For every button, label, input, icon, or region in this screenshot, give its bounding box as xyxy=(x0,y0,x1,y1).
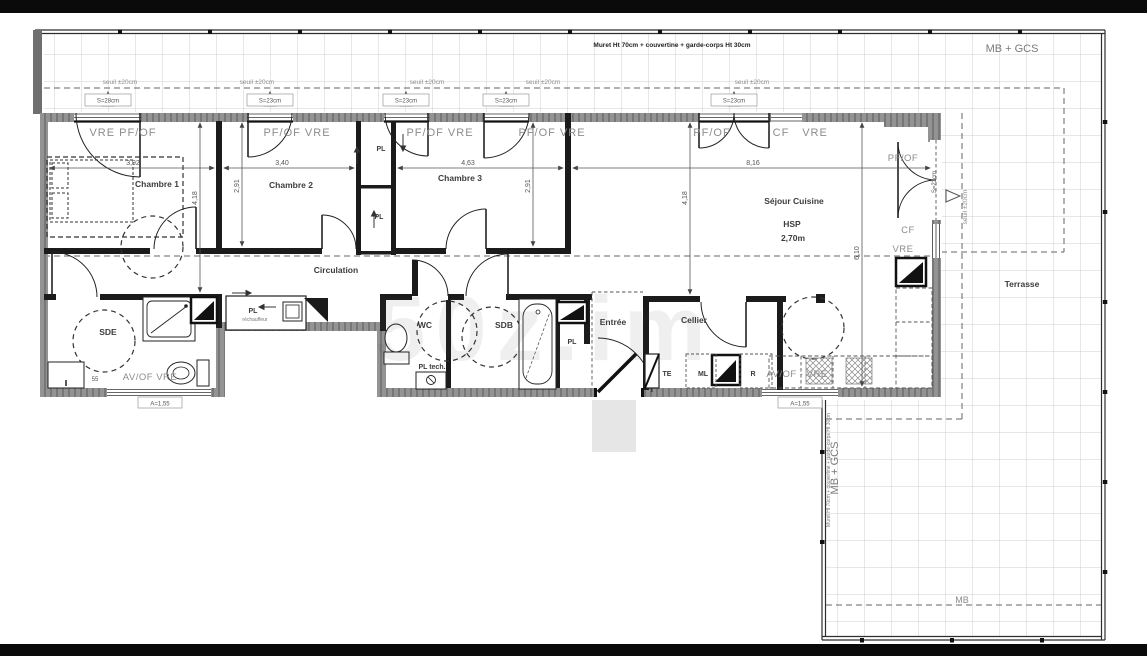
dim-ch2-height: 2,91 xyxy=(234,179,241,193)
label-vre-pfof-ch1: VRE PF/OF xyxy=(89,127,156,139)
window-cf-fixed xyxy=(771,112,802,123)
label-pfof-sejour: PF/OF xyxy=(693,127,730,139)
label-pl-sdb: PL xyxy=(568,339,578,346)
closet-corner xyxy=(304,298,328,322)
pillow-1 xyxy=(52,163,68,188)
bottom-black-bar xyxy=(0,644,1147,656)
exterior-wall-bottom-main xyxy=(377,388,940,397)
exterior-wall-notch-left xyxy=(216,331,225,397)
dim-sejour-width: 8,16 xyxy=(746,160,760,167)
turning-circle-sejour xyxy=(782,297,844,359)
dim-ch3-width: 4,63 xyxy=(461,160,475,167)
label-55: 55 xyxy=(92,377,99,383)
label-chambre1: Chambre 1 xyxy=(135,179,179,189)
label-mb-bottom: MB xyxy=(955,595,969,605)
label-pl-tech: PL tech. xyxy=(418,364,445,371)
label-pl-upper: PL xyxy=(377,146,387,153)
terrace-end-wall xyxy=(33,30,42,114)
label-pfof-vre-ch3a: PF/OF VRE xyxy=(406,127,473,139)
label-seuil: seuil ±20cm xyxy=(735,79,770,86)
terrace-block-bottom xyxy=(826,400,941,636)
label-sill-23: S=23cm xyxy=(395,99,417,105)
pillow-2 xyxy=(52,193,68,218)
entrance-door-gap xyxy=(592,388,644,452)
kitchen-sink-hatched xyxy=(846,358,872,384)
floor-plan-drawing: 50z.im Muret Ht 70cm + couvertine + gard… xyxy=(0,0,1147,656)
label-entree: Entrée xyxy=(600,317,627,327)
label-terrasse: Terrasse xyxy=(1005,279,1040,289)
dim-allege-left: A=1,55 xyxy=(150,402,170,408)
label-seuil: seuil ±20cm xyxy=(526,79,561,86)
label-cellier: Cellier xyxy=(681,315,708,325)
label-pl-lower: PL xyxy=(375,214,385,221)
dim-ch2-width: 3,40 xyxy=(275,160,289,167)
window-ch1 xyxy=(74,112,141,123)
bed-ch1 xyxy=(50,160,133,222)
note-muret-side: Muret Ht 70cm + couvertine + garde-corps… xyxy=(826,413,832,527)
dim-mid-height: 4,18 xyxy=(682,191,689,205)
label-seuil: seuil ±20cm xyxy=(240,79,275,86)
label-hsp-value: 2,70m xyxy=(781,233,806,243)
window-right-cf xyxy=(930,224,942,258)
label-chambre2: Chambre 2 xyxy=(269,180,313,190)
turning-circle-ch1 xyxy=(121,216,183,278)
label-sde: SDE xyxy=(99,327,117,337)
label-sejour: Séjour Cuisine xyxy=(764,196,824,206)
label-pfof-vre-ch3b: PF/OF VRE xyxy=(518,127,585,139)
label-seuil-vertical: seuil ±20cm xyxy=(962,190,969,225)
terrace-band-top xyxy=(44,34,1101,113)
sink-sde xyxy=(191,297,217,323)
label-r: R xyxy=(750,371,755,378)
note-muret-top: Muret Ht 70cm + couvertine + garde-corps… xyxy=(593,42,750,49)
dim-allege-right: A=1,55 xyxy=(790,402,810,408)
label-sill-28: S=28cm xyxy=(97,99,119,105)
label-cf-right: CF xyxy=(901,225,915,236)
label-te: TE xyxy=(663,371,672,378)
label-rechauffeur: réchauffeur xyxy=(242,317,268,323)
label-wc: WC xyxy=(418,320,432,330)
window-ch3-a xyxy=(384,112,429,123)
label-cf-sejour: CF xyxy=(773,127,790,139)
entrance-walkway xyxy=(592,400,636,452)
top-black-bar xyxy=(0,0,1147,13)
exterior-wall-left xyxy=(40,113,48,397)
door-arc-sde xyxy=(52,252,97,297)
label-chambre3: Chambre 3 xyxy=(438,173,482,183)
label-sill-23-vertical: S=23cm xyxy=(932,171,938,193)
label-hsp: HSP xyxy=(783,219,801,229)
door-arc-ch1 xyxy=(154,207,196,249)
dim-sejour-height: 6,10 xyxy=(854,246,861,260)
dim-ch3-height: 2,91 xyxy=(525,179,532,193)
label-sdb: SDB xyxy=(495,320,513,330)
door-arc-ch3 xyxy=(446,209,486,249)
label-pfof-vre-ch2: PF/OF VRE xyxy=(263,127,330,139)
label-sill-23: S=23cm xyxy=(259,99,281,105)
dim-ch1-width: 3,92 xyxy=(126,160,140,167)
bed-zone-ch1 xyxy=(47,157,183,237)
label-pfof-right: PF/OF xyxy=(888,153,918,164)
dim-left-height: 4,18 xyxy=(192,191,199,205)
label-sill-23: S=23cm xyxy=(495,99,517,105)
label-mb-gcs-top: MB + GCS xyxy=(986,43,1039,55)
label-pl-circulation: PL xyxy=(249,308,259,315)
label-seuil: seuil ±20cm xyxy=(103,79,138,86)
label-seuil: seuil ±20cm xyxy=(410,79,445,86)
window-sde xyxy=(107,388,211,397)
window-ch3-b xyxy=(484,112,529,123)
label-sill-23: S=23cm xyxy=(723,99,745,105)
label-ml: ML xyxy=(698,371,709,378)
label-vre-right: VRE xyxy=(892,244,913,255)
label-avof-sde: AV/OF VRE xyxy=(123,372,177,383)
floor-plan-page: 50z.im Muret Ht 70cm + couvertine + gard… xyxy=(0,0,1147,656)
label-avof-kitchen: AV/OF - VRE xyxy=(766,369,827,380)
label-circulation: Circulation xyxy=(314,265,358,275)
shower-sde xyxy=(143,297,195,341)
sink-kitchen-right xyxy=(896,258,926,286)
window-kitchen xyxy=(762,388,838,397)
label-vre-sejour: VRE xyxy=(802,127,828,139)
door-arc-ch2 xyxy=(322,215,356,249)
window-ch2 xyxy=(247,112,293,123)
